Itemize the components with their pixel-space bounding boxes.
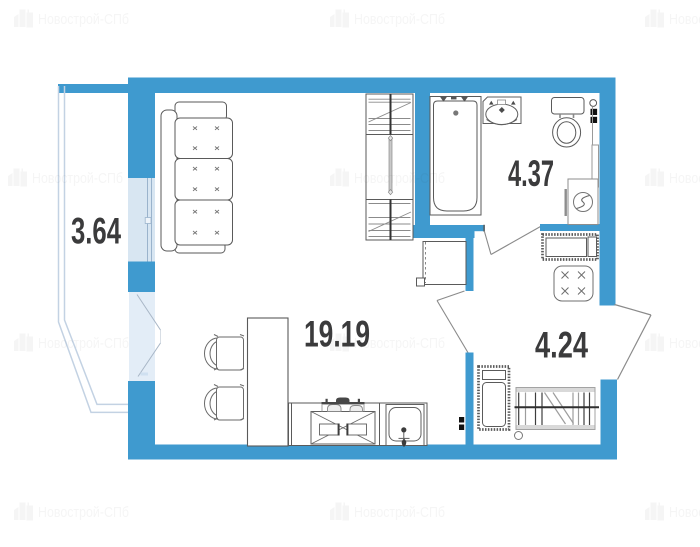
svg-text:4.37: 4.37 (508, 153, 554, 194)
svg-text:4.24: 4.24 (535, 325, 588, 366)
svg-text:3.64: 3.64 (71, 211, 121, 252)
